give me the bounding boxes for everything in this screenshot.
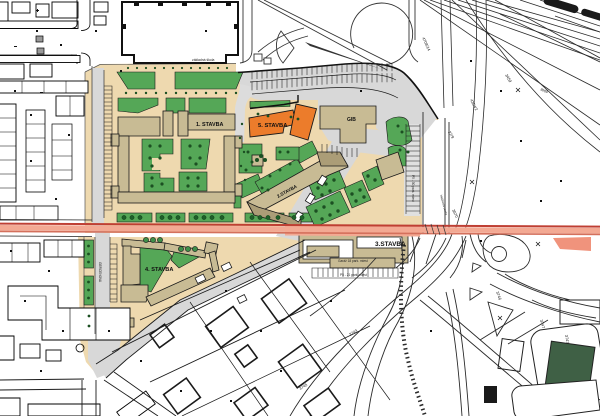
svg-text:4. STAVBA: 4. STAVBA <box>145 267 173 273</box>
svg-text:5. STAVBA: 5. STAVBA <box>258 123 288 129</box>
svg-text:GIB: GIB <box>347 117 356 123</box>
svg-text:P5 - 30 park. miest: P5 - 30 park. miest <box>411 175 415 202</box>
svg-text:1. STAVBA: 1. STAVBA <box>196 122 223 128</box>
svg-text:GERCENOVA: GERCENOVA <box>98 262 102 283</box>
svg-text:Garáž 18 park. miest: Garáž 18 park. miest <box>338 259 368 263</box>
svg-text:P5 - 21 park. miest: P5 - 21 park. miest <box>340 273 367 277</box>
svg-text:základná škola: základná škola <box>192 58 215 62</box>
svg-text:3.STAVBA: 3.STAVBA <box>375 241 406 248</box>
